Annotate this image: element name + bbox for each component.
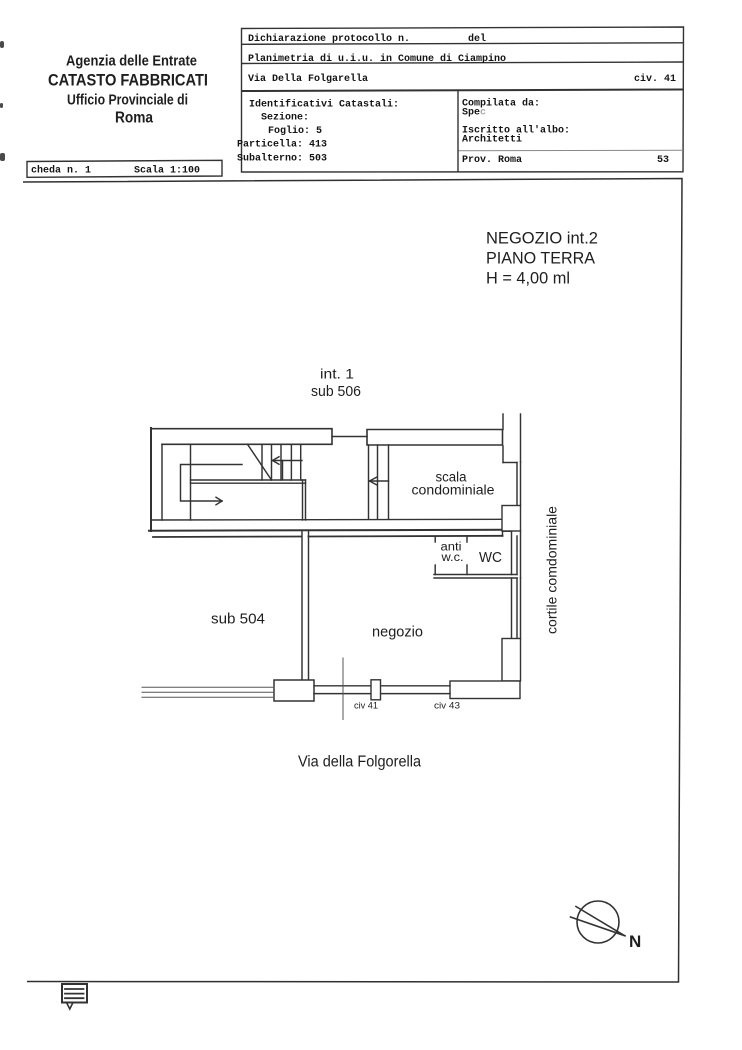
svg-text:Spe: Spe [462, 108, 480, 119]
svg-text:CATASTO FABBRICATI: CATASTO FABBRICATI [48, 72, 208, 90]
svg-text:civ 41: civ 41 [354, 701, 378, 711]
svg-text:del: del [468, 33, 486, 45]
svg-text:int. 1: int. 1 [320, 366, 354, 382]
svg-text:c: c [480, 108, 486, 119]
svg-text:civ. 41: civ. 41 [634, 73, 676, 85]
svg-text:Sezione:: Sezione: [261, 112, 309, 124]
svg-text:Via della Folgorella: Via della Folgorella [298, 754, 421, 771]
svg-text:sub 506: sub 506 [311, 384, 361, 400]
svg-text:Foglio: 5: Foglio: 5 [268, 125, 322, 137]
svg-text:w.c.: w.c. [440, 552, 463, 564]
svg-text:Ufficio Provinciale di: Ufficio Provinciale di [67, 92, 188, 109]
svg-text:H = 4,00 ml: H = 4,00 ml [486, 269, 570, 288]
svg-text:cortile comdominiale: cortile comdominiale [544, 506, 560, 634]
svg-text:Scala 1:100: Scala 1:100 [134, 165, 200, 177]
svg-text:sub 504: sub 504 [211, 611, 265, 628]
svg-text:Subalterno: 503: Subalterno: 503 [237, 153, 327, 165]
svg-text:Dichiarazione protocollo n.: Dichiarazione protocollo n. [248, 33, 410, 45]
svg-text:negozio: negozio [372, 625, 423, 641]
svg-text:civ 43: civ 43 [434, 701, 460, 711]
svg-text:cheda n. 1: cheda n. 1 [31, 165, 91, 177]
svg-text:53: 53 [657, 155, 669, 166]
svg-text:NEGOZIO int.2: NEGOZIO int.2 [486, 229, 598, 248]
svg-text:Identificativi Catastali:: Identificativi Catastali: [249, 99, 399, 111]
svg-text:Via Della Folgarella: Via Della Folgarella [248, 73, 368, 85]
svg-text:condominiale: condominiale [412, 483, 495, 498]
svg-text:Architetti: Architetti [462, 134, 522, 146]
svg-text:Planimetria di u.i.u. in Comun: Planimetria di u.i.u. in Comune di Ciamp… [248, 53, 506, 65]
svg-text:N: N [629, 932, 641, 951]
svg-text:Particella: 413: Particella: 413 [237, 139, 327, 151]
svg-text:Agenzia delle Entrate: Agenzia delle Entrate [66, 53, 197, 70]
svg-text:Prov. Roma: Prov. Roma [462, 155, 522, 166]
svg-text:Roma: Roma [115, 110, 153, 127]
svg-text:PIANO TERRA: PIANO TERRA [486, 249, 596, 268]
svg-text:WC: WC [479, 549, 502, 566]
